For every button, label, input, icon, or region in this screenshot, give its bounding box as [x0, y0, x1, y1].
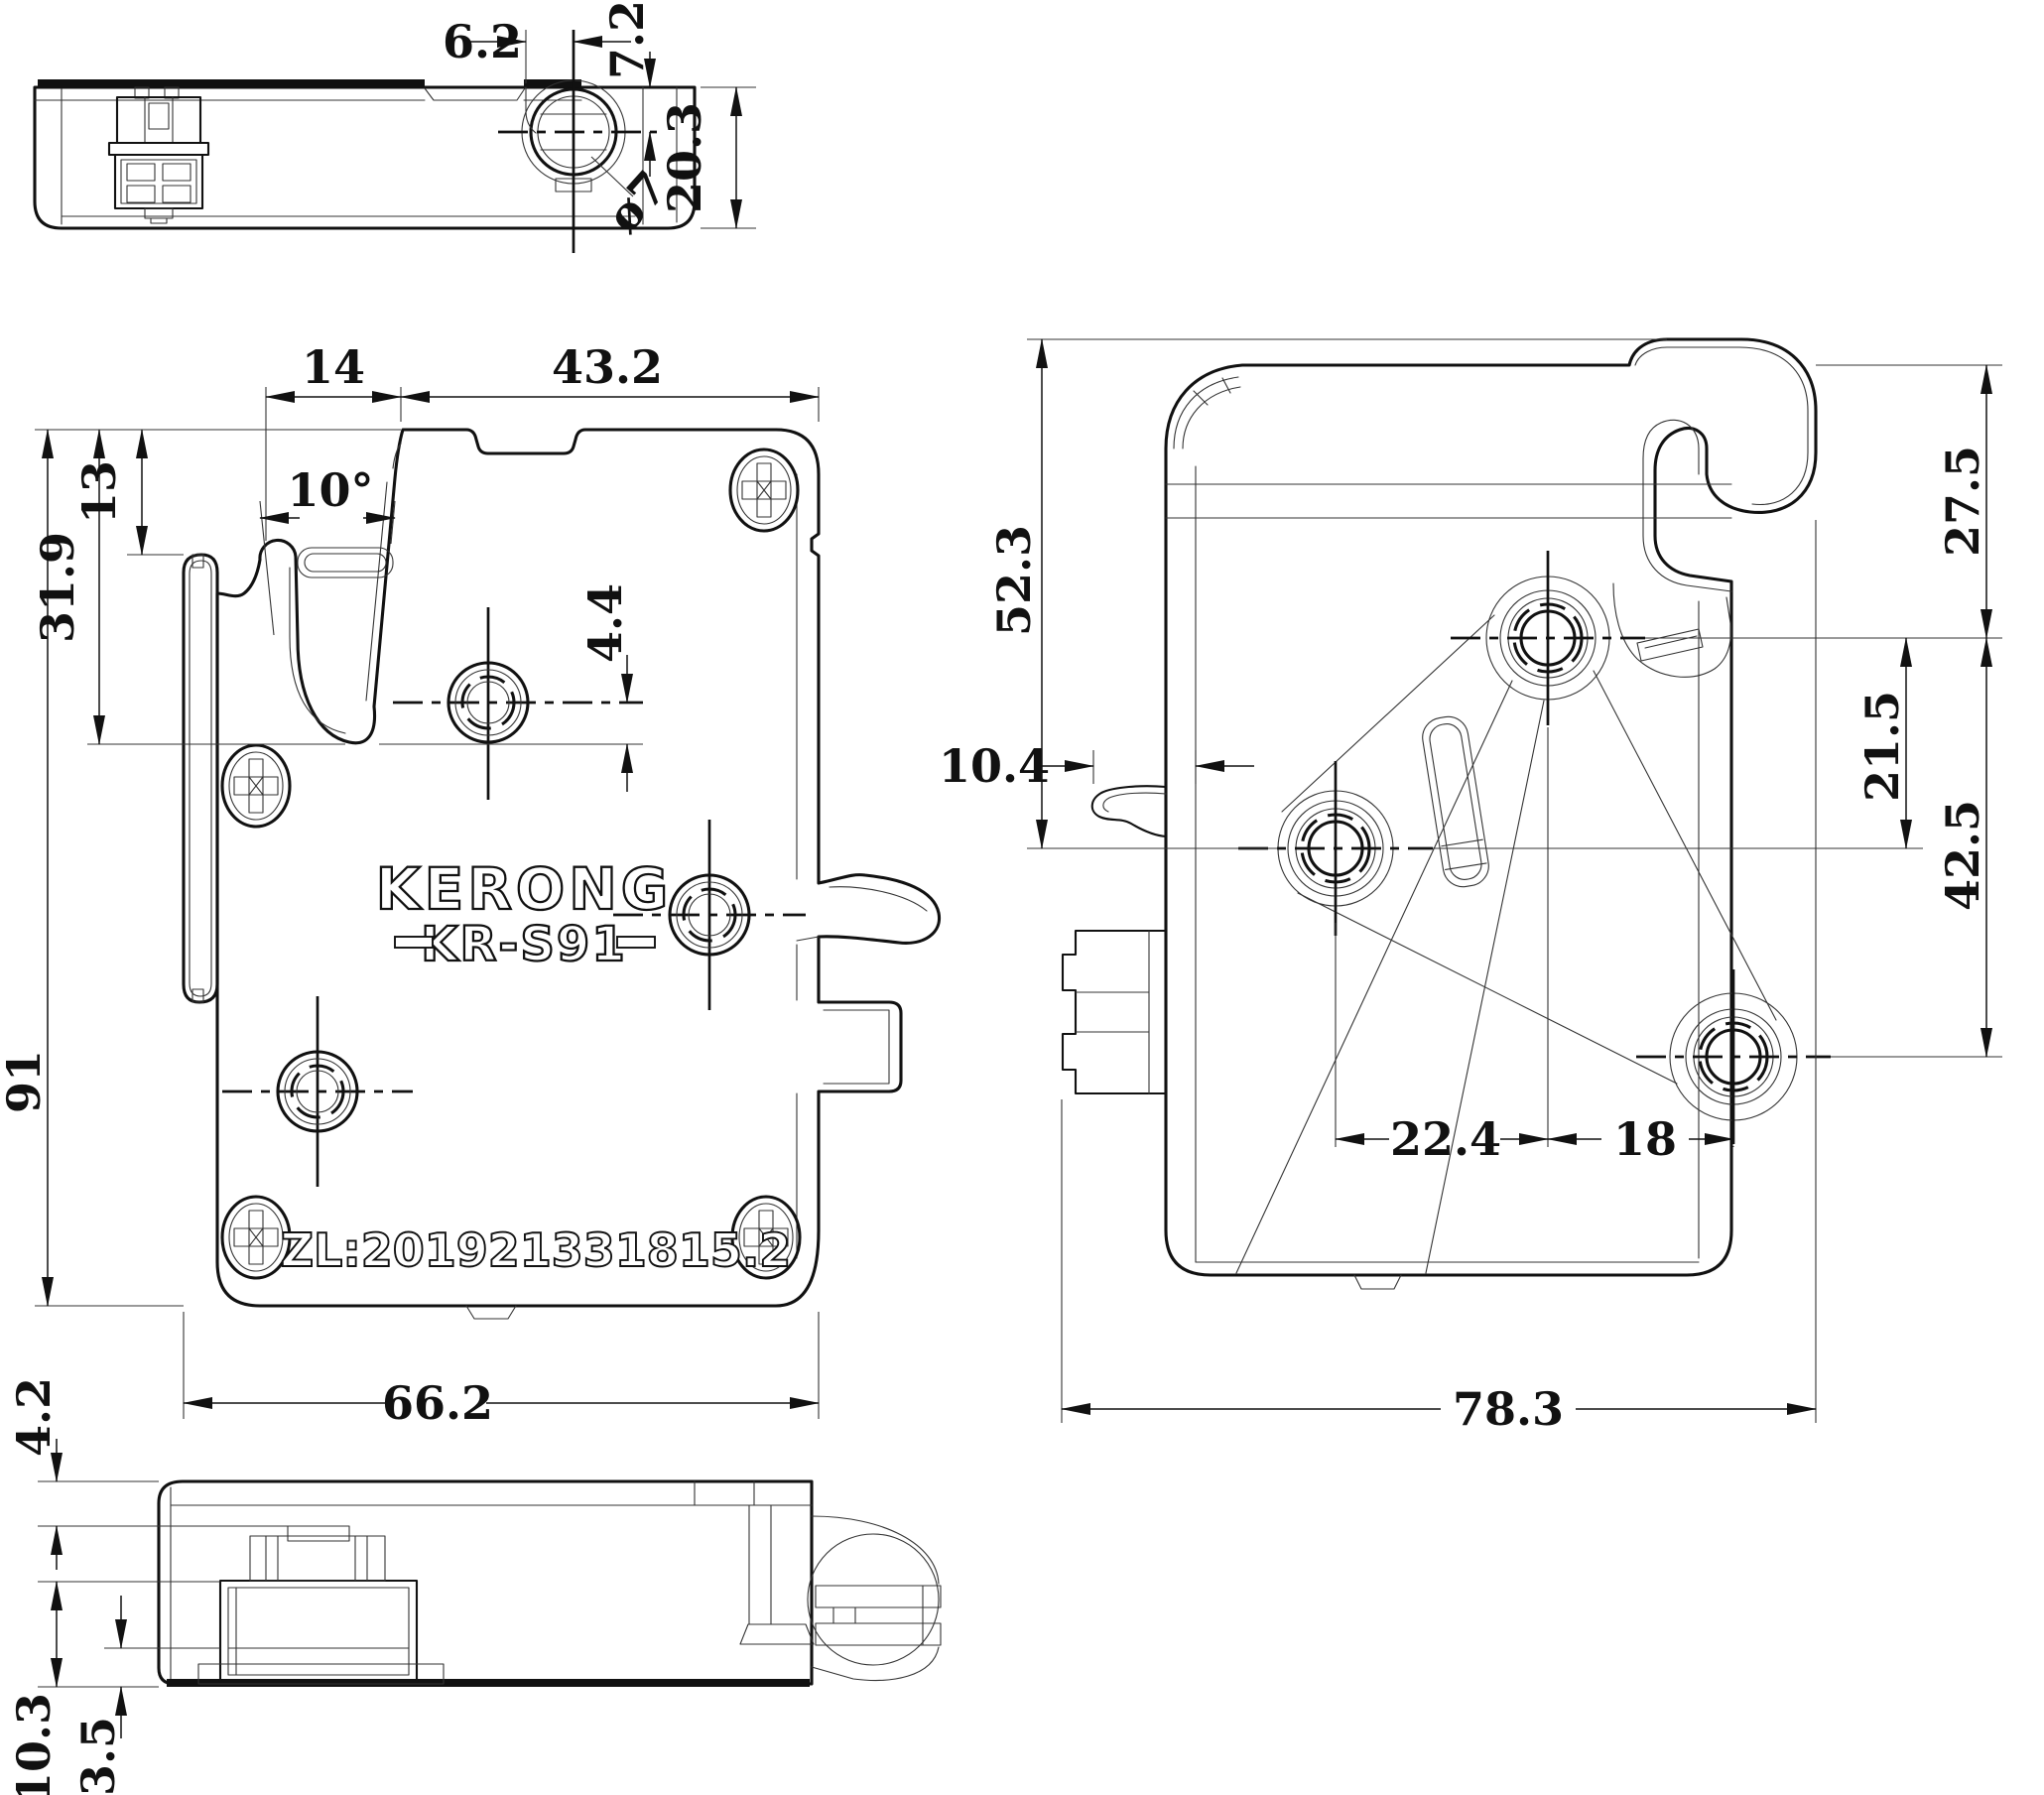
dim-bottom-step: 4.2: [7, 1377, 288, 1570]
right-view: 27.5 42.5 21.5 52.3 10.4: [939, 339, 2002, 1436]
bottom-view: 4.2 10.3 3.5: [7, 1377, 941, 1795]
dim-label-10-4: 10.4: [939, 739, 1050, 793]
dim-label-42-5: 42.5: [1936, 800, 1989, 911]
dim-right-top-to-hole: 27.5: [1645, 365, 2002, 638]
model-dash-left: [395, 937, 433, 948]
dim-label-3-5: 3.5: [71, 1717, 125, 1795]
dim-label-22-4: 22.4: [1390, 1112, 1501, 1166]
mount-strip-left: [38, 79, 425, 88]
dim-label-7-2: 7.2: [600, 0, 654, 79]
dim-right-hole-gaps-h: 22.4 18: [1336, 727, 1733, 1166]
dim-label-18: 18: [1613, 1112, 1677, 1166]
screw-left: [222, 745, 290, 827]
dim-label-6-2: 6.2: [443, 15, 522, 68]
dim-front-width: 66.2: [184, 1312, 819, 1430]
dim-right-hole-gap: 21.5: [1433, 638, 1923, 848]
solenoid: [198, 1526, 444, 1684]
dim-top-height: 20.3: [658, 87, 756, 228]
dim-label-52-3: 52.3: [987, 525, 1041, 636]
dim-front-tab: 13: [72, 430, 184, 555]
hole-front-bottom: [222, 996, 413, 1187]
cad-sheet: 6.2 7.2 20.3 ø7: [0, 0, 2044, 1795]
dim-label-14: 14: [302, 340, 365, 394]
dim-label-4-2: 4.2: [7, 1377, 61, 1457]
top-view: 6.2 7.2 20.3 ø7: [35, 0, 756, 253]
screw-top-right: [730, 449, 798, 531]
dim-right-width: 78.3: [1062, 520, 1816, 1436]
dim-label-91: 91: [0, 1050, 51, 1113]
dim-label-21-5: 21.5: [1855, 691, 1909, 802]
latch-roller: [740, 1505, 941, 1680]
wire-connector: [109, 87, 208, 223]
dim-label-66-2: 66.2: [382, 1376, 493, 1430]
dim-label-10deg: 10°: [287, 463, 373, 517]
model-label: KR-S91: [421, 917, 626, 972]
model-dash-right: [617, 937, 655, 948]
dim-label-10-3: 10.3: [7, 1693, 61, 1795]
hole-right-top: [1451, 551, 1645, 725]
dim-bottom-base: 3.5: [71, 1596, 220, 1795]
dim-label-43-2: 43.2: [552, 340, 663, 394]
mount-flange: [184, 555, 217, 1002]
patent-number: ZL:201921331815.2: [281, 1223, 792, 1277]
dim-label-27-5: 27.5: [1936, 446, 1989, 557]
dim-front-hole-offset: 4.4: [379, 583, 643, 792]
dim-label-4-4: 4.4: [578, 583, 632, 663]
front-view: KERONG KR-S91 ZL:201921331815.2 14 43.2 …: [0, 340, 940, 1430]
dim-label-31-9: 31.9: [31, 532, 84, 643]
linkage-plate: [1236, 577, 1797, 1273]
dim-label-78-3: 78.3: [1453, 1382, 1564, 1436]
dim-right-clip: 10.4: [939, 739, 1254, 793]
brand-logo: KERONG: [376, 855, 673, 923]
